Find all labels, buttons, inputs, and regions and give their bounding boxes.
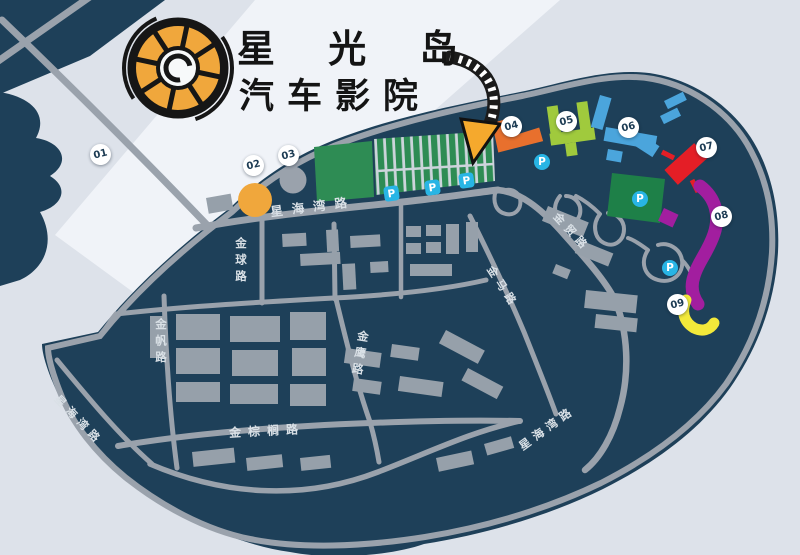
logo-title-line2: 汽车影院 [239, 68, 431, 119]
road-label-jinfan: 金帆路 [153, 318, 169, 368]
logo-title-line1: 星 光 岛 [237, 18, 471, 73]
parking-badge-5[interactable]: P [632, 191, 648, 207]
parking-badge-3[interactable]: P [458, 172, 475, 189]
parking-badge-1[interactable]: P [383, 185, 400, 202]
parking-badge-6[interactable]: P [662, 260, 678, 276]
parking-badge-2[interactable]: P [424, 179, 441, 196]
zone-03-circle [280, 167, 307, 194]
parking-badge-4[interactable]: P [534, 154, 550, 170]
road-label-jinqiu: 金球路 [233, 237, 249, 287]
map-canvas: 星 光 岛 汽车影院 01 02 03 04 05 06 07 08 09 P … [0, 0, 800, 555]
